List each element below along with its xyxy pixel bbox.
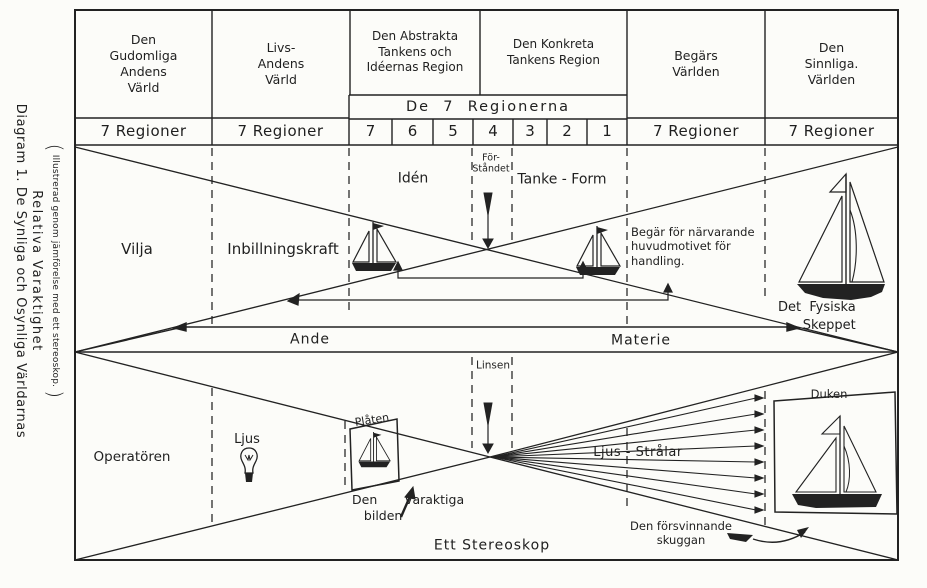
screen-ship-icon xyxy=(792,416,882,508)
label-tanke-form: Tanke - Form xyxy=(517,172,606,189)
region-number-5: 5 xyxy=(433,119,473,145)
screen-frame xyxy=(774,392,897,514)
sailboat-icon-right xyxy=(576,226,620,275)
region-number-7: 7 xyxy=(349,119,392,145)
region-number-6: 6 xyxy=(392,119,433,145)
ande-materie-band xyxy=(75,323,898,352)
region-number-1: 1 xyxy=(587,119,627,145)
plate-frame xyxy=(350,419,399,490)
label-begar-motiv: Begär för närvarande huvudmotivet för ha… xyxy=(631,225,755,268)
label-materie: Materie xyxy=(611,333,671,350)
sub-header-de-7-regionerna: De 7 Regionerna xyxy=(349,95,627,119)
label-varaktiga-bilden: Den varaktiga bilden xyxy=(352,492,464,523)
diagram-subtitle-text: Illustrerad genom jämförelse med ett ste… xyxy=(50,155,60,387)
label-ande: Ande xyxy=(290,332,330,349)
region-number-3: 3 xyxy=(513,119,547,145)
sailboat-icon-left xyxy=(352,222,396,271)
col-header-sinnliga-varlden: Den Sinnliga. Världen xyxy=(766,11,897,117)
col-header-livs-andens-varld: Livs- Andens Värld xyxy=(213,11,349,117)
region-number-2: 2 xyxy=(547,119,587,145)
lens-arrow-icon xyxy=(483,403,493,453)
close-paren: ) xyxy=(43,390,67,398)
col-header-abstrakta-tankens-region: Den Abstrakta Tankens och Idéernas Regio… xyxy=(351,11,479,94)
plate-ship-icon xyxy=(358,432,390,467)
vanishing-shadow-arrow-icon xyxy=(727,527,809,542)
label-vilja: Vilja xyxy=(121,240,153,258)
col-header-gudomliga-andens-varld: Den Gudomliga Andens Värld xyxy=(76,11,211,117)
label-forsvinnande-skuggan: Den försvinnande skuggan xyxy=(630,520,732,548)
diagram-title-line1: Diagram 1. De Synliga och Osynliga Värld… xyxy=(12,90,28,452)
regioner-cell-col1: 7 Regioner xyxy=(75,118,212,145)
label-duken: Duken xyxy=(811,388,848,402)
label-operatoren: Operatören xyxy=(94,449,171,465)
diagram-page: ( Illustrerad genom jämförelse med ett s… xyxy=(0,0,927,588)
understanding-arrow-icon xyxy=(483,193,493,248)
label-ett-stereoskop: Ett Stereoskop xyxy=(434,538,550,555)
label-ljus: Ljus xyxy=(234,432,260,448)
col-header-begars-varlden: Begärs Världen xyxy=(628,11,764,117)
lightbulb-icon xyxy=(241,448,257,482)
stereoscope-cone-lines xyxy=(75,352,898,560)
diagram-subtitle: ( Illustrerad genom jämförelse med ett s… xyxy=(44,90,66,452)
diagram-side-title: ( Illustrerad genom jämförelse med ett s… xyxy=(12,90,66,452)
upper-crossing-lines xyxy=(75,147,898,352)
regioner-cell-col6: 7 Regioner xyxy=(765,118,898,145)
physical-ship-icon xyxy=(797,174,885,300)
open-paren: ( xyxy=(43,144,67,152)
regioner-cell-col5: 7 Regioner xyxy=(627,118,765,145)
region-number-4: 4 xyxy=(473,119,513,145)
label-ljus-stralar: Ljus - Strålar xyxy=(593,445,682,461)
label-linsen: Linsen xyxy=(476,360,510,373)
label-det-fysiska-skeppet: Det Fysiska Skeppet xyxy=(778,299,856,334)
col-header-konkreta-tankens-region: Den Konkreta Tankens Region xyxy=(481,11,626,94)
label-inbillningskraft: Inbillningskraft xyxy=(227,240,338,258)
label-platen: Plåten xyxy=(354,411,390,429)
label-iden: Idén xyxy=(398,171,429,188)
boat-span-bracket xyxy=(288,262,672,305)
label-forstandet: För- Ståndet xyxy=(472,153,509,176)
diagram-title-line2: Relativa Varaktighet xyxy=(28,90,44,452)
regioner-cell-col2: 7 Regioner xyxy=(212,118,349,145)
